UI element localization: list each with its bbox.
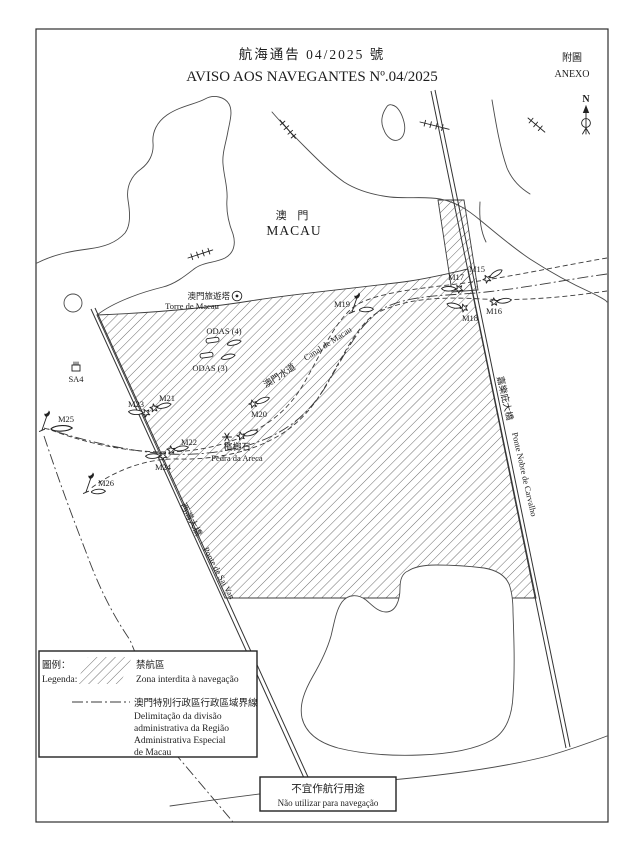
north-label: N [582, 94, 590, 105]
buoy-m19-label: M19 [334, 299, 350, 309]
odas3-label: ODAS (3) [192, 363, 227, 373]
buoy-m21-label: M21 [159, 393, 175, 403]
notice-to-mariners-chart: 澳 門 MACAU 澳門旅遊塔 Torre de Macau 澳門水道 Cana… [0, 0, 639, 852]
legend-boundary-pt-1: Delimitação da divisão [134, 712, 222, 722]
annex-label-zh: 附圖 [562, 51, 582, 64]
legend-boundary-pt-4: de Macau [134, 748, 171, 758]
legend-boundary-zh: 澳門特別行政區行政區域界線 [134, 697, 258, 709]
note-pt: Não utilizar para navegação [278, 798, 379, 808]
region-label-pt: MACAU [266, 223, 321, 238]
islet-north [382, 105, 405, 141]
rock-label-pt: Pedra da Areca [211, 453, 263, 463]
title-pt: AVISO AOS NAVEGANTES Nº.04/2025 [186, 69, 438, 85]
piers-northeast [419, 119, 450, 132]
roundabout-outline [64, 294, 82, 312]
note-box: 不宜作航行用途 Não utilizar para navegação [260, 777, 396, 811]
coastline-macau-peninsula [37, 97, 234, 315]
sa4-label: SA4 [68, 374, 84, 384]
buoy-m16 [490, 297, 512, 306]
region-label-zh: 澳 門 [276, 209, 313, 222]
buoy-m16-label: M16 [486, 306, 502, 316]
legend-box: 圖例： Legenda: 禁航區 Zona interdita à navega… [39, 651, 258, 758]
buoy-m24-label: M24 [155, 462, 172, 472]
legend-zone-pt: Zona interdita à navegação [136, 675, 239, 685]
buoy-m15-label: M15 [469, 264, 485, 274]
rock-label-zh: 檳榔石 [223, 441, 250, 452]
note-zh: 不宜作航行用途 [291, 782, 365, 795]
coastline-nape-east [492, 100, 530, 194]
piers-north [278, 118, 298, 140]
tower-symbol [232, 291, 242, 301]
buoy-m22-label: M22 [181, 437, 197, 447]
chart-canvas: 澳 門 MACAU 澳門旅遊塔 Torre de Macau 澳門水道 Cana… [0, 0, 639, 852]
buoy-m20-label: M20 [251, 409, 267, 419]
tower-label-pt: Torre de Macau [165, 301, 219, 311]
legend-boundary-pt-2: administrativa da Região [134, 724, 229, 734]
tower-label-zh: 澳門旅遊塔 [187, 291, 230, 301]
sa4-symbol [72, 362, 80, 371]
breakwater-east [526, 116, 547, 135]
title-zh: 航海通告 04/2025 號 [239, 47, 386, 62]
buoy-m23-label: M23 [128, 399, 144, 409]
legend-boundary-pt-3: Administrativa Especial [134, 736, 226, 746]
buoy-m26-label: M26 [98, 478, 114, 488]
odas4-label: ODAS (4) [206, 326, 241, 336]
annex-label-pt: ANEXO [555, 69, 590, 80]
legend-title-pt: Legenda: [42, 675, 77, 685]
buoy-m18-label: M18 [462, 313, 478, 323]
legend-title-zh: 圖例： [42, 659, 71, 671]
piers-inner-harbour [187, 247, 214, 261]
legend-zone-zh: 禁航區 [136, 659, 165, 671]
buoy-m17-label: M17 [448, 272, 464, 282]
north-arrow: N [582, 94, 591, 134]
buoy-m25-label: M25 [58, 414, 74, 424]
